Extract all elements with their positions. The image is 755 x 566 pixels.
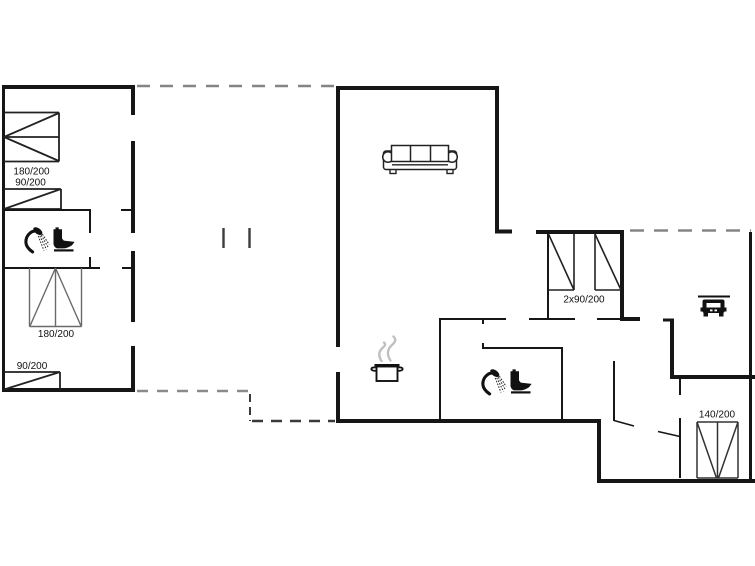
svg-text:90/200: 90/200 <box>17 361 48 372</box>
svg-text:180/200: 180/200 <box>38 329 75 340</box>
svg-text:180/200: 180/200 <box>13 167 50 178</box>
svg-text:140/200: 140/200 <box>699 410 736 421</box>
svg-text:2x90/200: 2x90/200 <box>563 295 605 306</box>
svg-text:90/200: 90/200 <box>15 178 46 189</box>
